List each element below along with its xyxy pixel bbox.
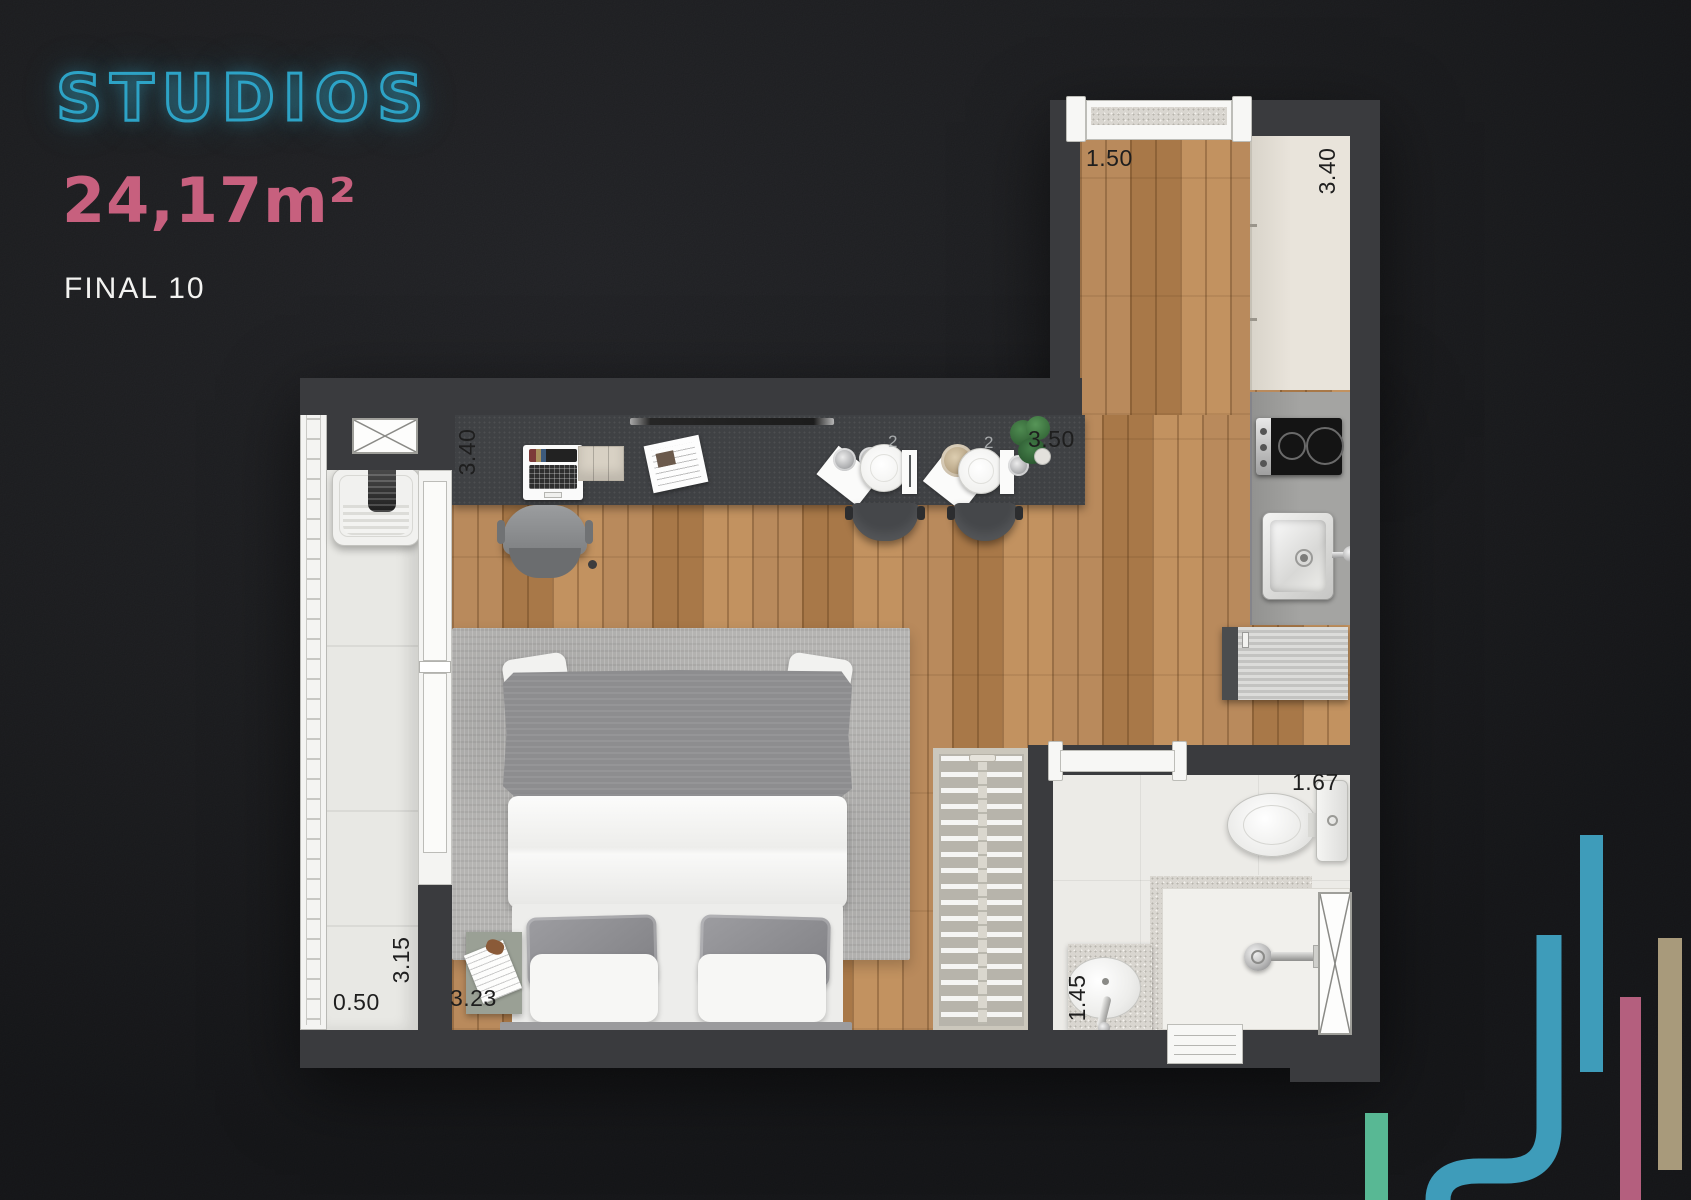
desk-chair-arm bbox=[497, 520, 505, 544]
bathroom-window bbox=[1167, 1024, 1243, 1064]
balcony-tile-joint bbox=[327, 810, 418, 812]
wall-tv bbox=[630, 418, 834, 425]
window-post bbox=[1066, 96, 1086, 142]
balcony-railing bbox=[300, 395, 327, 1030]
bed-duvet bbox=[508, 796, 847, 908]
shaft-x-icon bbox=[354, 420, 416, 452]
basin-drain-dot bbox=[1102, 978, 1109, 985]
bed-blanket bbox=[503, 670, 852, 802]
bed-pillow-white-right bbox=[698, 954, 826, 1022]
desk-organizer-divider bbox=[608, 446, 609, 481]
bar-pink bbox=[1620, 997, 1641, 1200]
burner-icon bbox=[1278, 432, 1306, 460]
plate-inner-ring bbox=[870, 454, 898, 482]
stool-arm bbox=[845, 506, 853, 520]
shower-drain-ring bbox=[1251, 950, 1265, 964]
dim-desk-wall: 3.40 bbox=[455, 423, 479, 481]
dim-bathroom-length: 1.67 bbox=[1292, 770, 1350, 794]
balcony-sliding-door bbox=[418, 470, 452, 885]
balcony-tile-joint bbox=[327, 925, 418, 927]
kitchen-sink bbox=[1262, 512, 1334, 600]
window-line bbox=[1174, 1045, 1236, 1046]
bar-teal-pipe bbox=[1438, 935, 1549, 1200]
shaft-x-icon bbox=[1320, 894, 1350, 1033]
wall-bathroom-left bbox=[1028, 745, 1053, 1030]
desk-chair-caster bbox=[588, 560, 597, 569]
window-post bbox=[1232, 96, 1252, 142]
counter-notch bbox=[1250, 318, 1257, 321]
glass bbox=[833, 448, 856, 471]
door-panel bbox=[423, 481, 447, 661]
fridge bbox=[1222, 627, 1348, 700]
balcony-tile-joint bbox=[327, 645, 418, 647]
bed-pillow-white-left bbox=[530, 954, 658, 1022]
door-track-cap bbox=[419, 661, 451, 673]
sink-drain-dot bbox=[1300, 554, 1308, 562]
steam-mark: 2 bbox=[888, 432, 897, 452]
dim-balcony-length: 3.15 bbox=[389, 931, 413, 989]
wall-top-main bbox=[300, 378, 1082, 415]
window-line bbox=[1174, 1054, 1236, 1055]
decorative-bars-graphic bbox=[1360, 755, 1691, 1200]
laptop-keyboard bbox=[529, 465, 577, 489]
stool-arm bbox=[947, 506, 955, 520]
fridge-hinge-side bbox=[1222, 627, 1238, 700]
wall-kitchen-left bbox=[1050, 100, 1080, 415]
closet-rod bbox=[978, 756, 987, 1024]
closet-handle bbox=[969, 754, 996, 762]
bathroom-door-threshold bbox=[1060, 750, 1175, 772]
unit-area: 24,17m² bbox=[62, 164, 357, 237]
door-panel bbox=[423, 673, 447, 853]
shaft-box-icon bbox=[1318, 892, 1352, 1035]
dim-bathroom-width: 1.45 bbox=[1065, 969, 1089, 1027]
wall-balcony-lower bbox=[418, 885, 452, 1030]
dim-bedroom-width: 3.23 bbox=[450, 986, 508, 1010]
floorplan-poster: STUDIOS 24,17m² FINAL 10 bbox=[0, 0, 1691, 1200]
cooktop bbox=[1256, 418, 1342, 475]
wardrobe-closet bbox=[933, 748, 1030, 1032]
bar-tan bbox=[1658, 938, 1682, 1170]
shower-threshold-top bbox=[1150, 876, 1312, 888]
counter-notch bbox=[1250, 224, 1257, 227]
desk-organizer-divider bbox=[593, 446, 594, 481]
stool-arm bbox=[917, 506, 925, 520]
dim-kitchen-wall: 3.40 bbox=[1315, 142, 1339, 200]
bar-teal-tall bbox=[1580, 835, 1603, 1072]
toilet-seat-ring bbox=[1243, 805, 1301, 845]
toilet-flush-button bbox=[1327, 815, 1338, 826]
stool-arm bbox=[1015, 506, 1023, 520]
window-line bbox=[1174, 1035, 1236, 1036]
cooktop-knob bbox=[1260, 460, 1267, 467]
steam-mark: 2 bbox=[984, 433, 993, 453]
cooktop-knob bbox=[1260, 428, 1267, 435]
burner-icon bbox=[1306, 427, 1344, 465]
desk-organizer bbox=[578, 446, 624, 481]
railing-ticks bbox=[306, 400, 321, 1025]
unit-number: FINAL 10 bbox=[64, 272, 206, 306]
plate-inner-ring bbox=[968, 458, 994, 484]
fridge-door bbox=[1238, 627, 1348, 700]
dim-balcony-width: 0.50 bbox=[333, 990, 391, 1014]
brand-title: STUDIOS bbox=[56, 62, 431, 136]
window-sill-texture bbox=[1091, 107, 1227, 125]
laptop-trackpad bbox=[544, 492, 562, 498]
bar-green bbox=[1365, 1113, 1388, 1200]
shaft-box-icon bbox=[352, 418, 418, 454]
shower-pipe bbox=[1271, 952, 1317, 961]
top-window bbox=[1086, 100, 1232, 140]
cooktop-knob bbox=[1260, 444, 1267, 451]
fork-icon bbox=[909, 455, 911, 487]
fridge-handle bbox=[1242, 632, 1249, 648]
dim-top-window: 1.50 bbox=[1086, 146, 1144, 170]
laptop-screen bbox=[529, 449, 577, 462]
dim-living-length: 3.50 bbox=[1028, 427, 1086, 451]
desk-chair-arm bbox=[585, 520, 593, 544]
